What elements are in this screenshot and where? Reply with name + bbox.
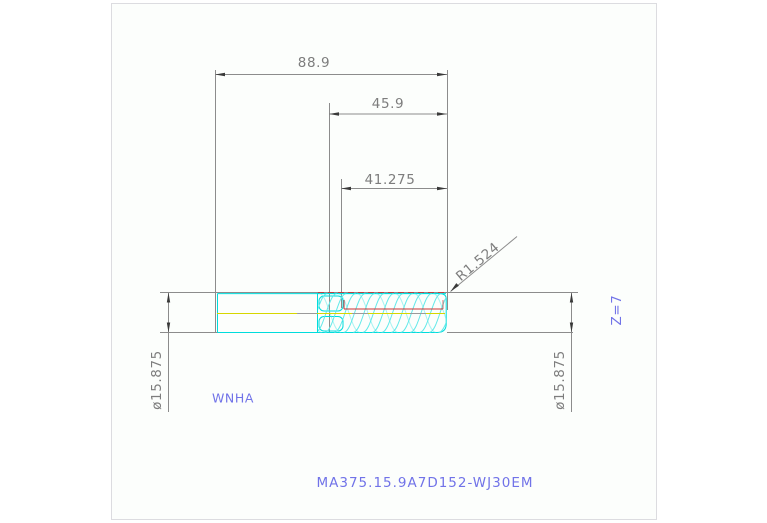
cutter-diameter-value: ø15.875 — [552, 350, 568, 410]
shank-diameter-value: ø15.875 — [149, 350, 165, 410]
flute-length-value: 45.9 — [372, 96, 404, 112]
cad-drawing-canvas[interactable]: 88.9 45.9 41.275 R1.524 ø15.875 ø15.875 … — [0, 0, 767, 523]
flute-count-label: Z=7 — [609, 295, 625, 326]
overall-length-value: 88.9 — [298, 55, 330, 71]
effective-length-value: 41.275 — [365, 172, 416, 188]
part-number-label: MA375.15.9A7D152-WJ30EM — [317, 475, 534, 491]
insert-type-label: WNHA — [212, 391, 254, 406]
drawing-geometry — [0, 0, 767, 523]
dimension-lines — [169, 75, 572, 413]
